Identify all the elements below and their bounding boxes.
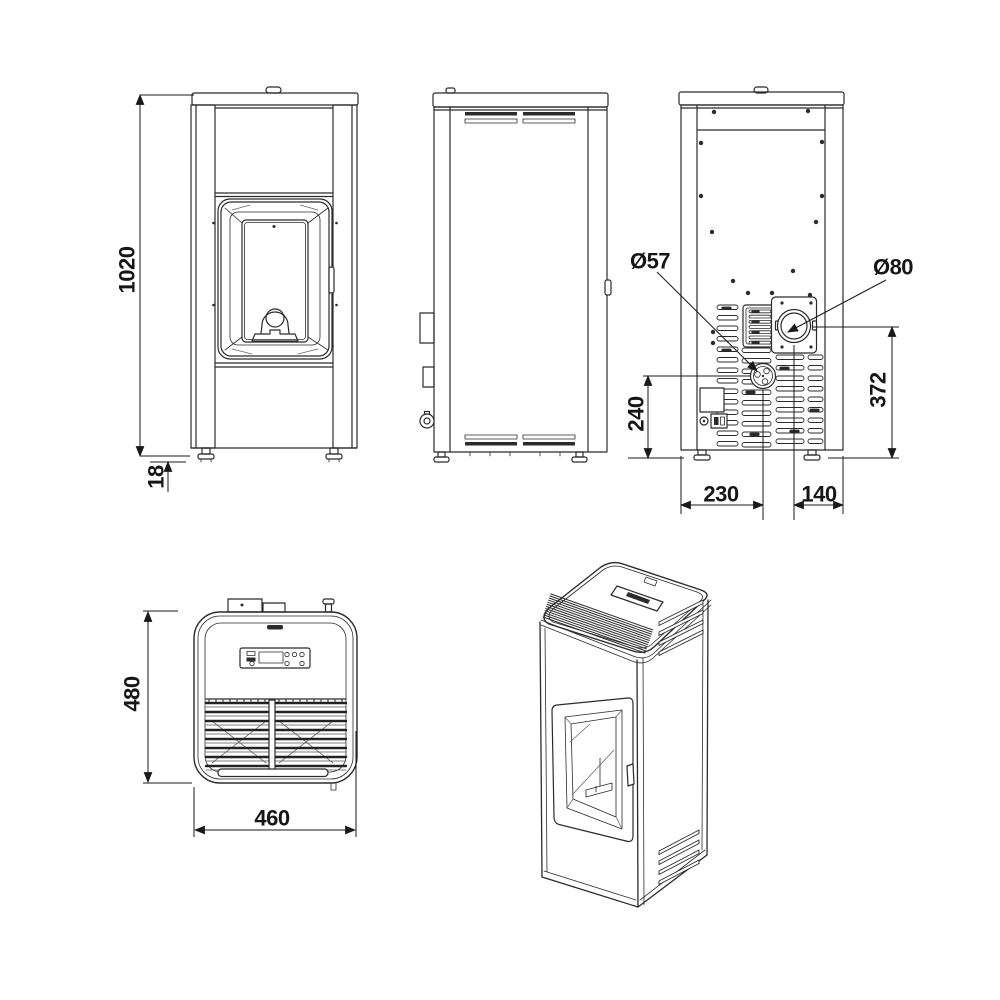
technical-drawing-sheet: 1020 18 (0, 0, 1000, 1000)
air-intake (751, 364, 776, 389)
side-top-vents (465, 112, 575, 123)
front-dimensions: 1020 18 (115, 95, 195, 492)
window-top-pin (273, 225, 276, 228)
dim-rear-intake-offset: 230 (703, 482, 738, 507)
control-display (259, 652, 283, 663)
front-door-handle (329, 267, 334, 293)
rear-junction-box (700, 388, 724, 412)
dim-top-width: 460 (254, 806, 289, 831)
top-grille-divider (269, 700, 275, 776)
power-inlet (700, 414, 727, 428)
dim-rear-intake-height: 240 (624, 396, 649, 431)
side-feet (434, 452, 587, 462)
top-grille (206, 699, 346, 777)
top-rear-fittings (228, 599, 334, 612)
top-view: 480 460 (120, 599, 358, 837)
rear-top-plate (679, 92, 844, 105)
front-view: 1020 18 (115, 87, 359, 492)
dim-rear-intake-diameter: Ø57 (630, 249, 670, 274)
front-left-panel (191, 105, 215, 448)
top-slot (267, 625, 283, 630)
top-grille-slats (206, 700, 346, 771)
front-door (218, 199, 332, 359)
burn-pot (252, 309, 298, 341)
top-grille-bottom-bar (218, 769, 328, 777)
flue-outlet (772, 297, 817, 353)
dim-rear-flue-offset: 140 (801, 482, 836, 507)
side-door-handle (605, 280, 611, 295)
side-rear-box-lower (423, 367, 434, 387)
side-body (434, 107, 607, 452)
dim-front-overall-height: 1020 (115, 246, 140, 293)
side-top-knob (446, 88, 455, 93)
rear-grille-plate-slats (749, 310, 771, 344)
front-top-plate (192, 93, 358, 105)
dim-front-foot-height: 18 (144, 465, 169, 489)
front-top-knob (266, 87, 281, 93)
top-rear-stub (331, 783, 336, 790)
isometric-view (540, 563, 711, 907)
side-view (420, 88, 611, 462)
control-panel (240, 648, 310, 668)
front-right-panel (333, 105, 357, 448)
front-feet (198, 448, 342, 462)
iso-side-vents (659, 600, 703, 885)
side-bottom-vents (465, 435, 575, 446)
side-intake-connector (420, 412, 434, 429)
top-dimensions: 480 460 (120, 611, 357, 837)
rear-view: Ø57 Ø80 240 372 230 140 (624, 87, 914, 520)
dim-rear-flue-diameter: Ø80 (873, 255, 913, 280)
dim-rear-flue-height: 372 (866, 372, 891, 407)
iso-door-handle (627, 764, 634, 786)
iso-door (552, 698, 634, 841)
dim-top-depth: 480 (120, 676, 145, 711)
rear-feet (694, 450, 820, 460)
side-rear-box-upper (420, 313, 434, 343)
stove-drawing: 1020 18 (0, 0, 1000, 1000)
side-top-plate (433, 93, 608, 107)
iso-display-recess (611, 586, 663, 611)
front-door-window (242, 220, 308, 342)
panel-screws (212, 222, 338, 307)
